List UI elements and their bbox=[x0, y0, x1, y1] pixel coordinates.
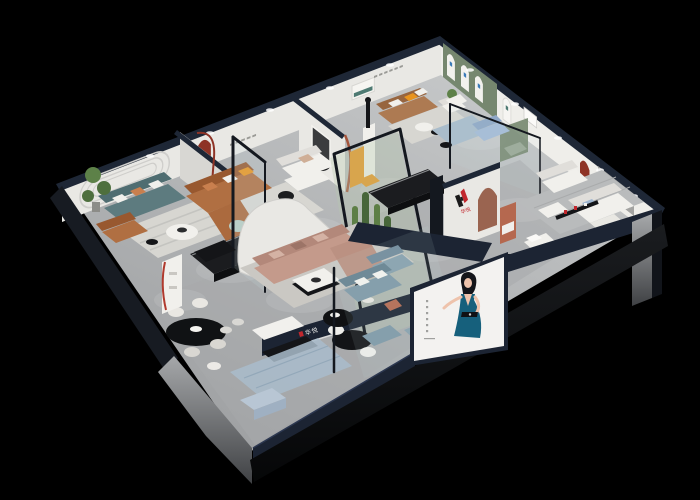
downlight bbox=[466, 68, 474, 72]
table-decor bbox=[177, 228, 187, 233]
red-display-shelf bbox=[162, 254, 182, 314]
cream-chair bbox=[192, 298, 208, 308]
table-setting bbox=[190, 326, 202, 332]
downlight bbox=[146, 154, 154, 158]
poster-signature-mark bbox=[424, 338, 435, 339]
downlight bbox=[386, 63, 394, 67]
cream-chair bbox=[184, 347, 200, 357]
table-tray bbox=[311, 278, 321, 283]
belt-buckle bbox=[469, 313, 471, 315]
downlight bbox=[266, 108, 274, 112]
downlight bbox=[554, 136, 562, 140]
round-coffee-table bbox=[415, 123, 433, 132]
statue-head bbox=[365, 97, 371, 103]
terracotta-high-chair bbox=[500, 202, 516, 244]
showroom-render: Isometric 3D cutaway render of a furnitu… bbox=[0, 0, 700, 500]
shelf-item bbox=[169, 286, 177, 289]
plant-pot bbox=[92, 202, 100, 212]
statue-figure bbox=[366, 102, 370, 128]
arched-doorway bbox=[478, 188, 497, 232]
downlight bbox=[326, 86, 334, 90]
shelf-item bbox=[169, 272, 177, 275]
side-table bbox=[146, 239, 158, 245]
bar-stool bbox=[232, 319, 244, 326]
display-item bbox=[584, 203, 587, 206]
cream-chair bbox=[210, 339, 226, 349]
bar-stool bbox=[220, 327, 232, 334]
red-display-item bbox=[574, 206, 577, 210]
side-table bbox=[207, 362, 221, 370]
downlight bbox=[511, 102, 519, 106]
red-display-item bbox=[564, 210, 567, 214]
dark-door-post bbox=[430, 175, 443, 242]
showroom-svg: Isometric 3D cutaway render of a furnitu… bbox=[0, 0, 700, 500]
model-face bbox=[464, 278, 472, 288]
